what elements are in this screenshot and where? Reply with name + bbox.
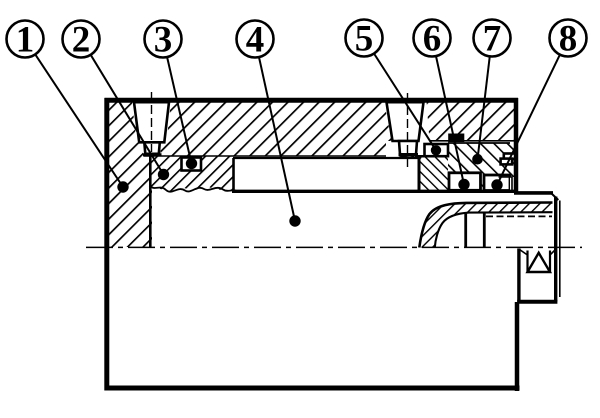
svg-text:2: 2 <box>72 20 91 61</box>
svg-text:8: 8 <box>559 19 578 60</box>
svg-text:7: 7 <box>483 19 502 60</box>
svg-text:6: 6 <box>423 19 442 60</box>
svg-text:3: 3 <box>154 20 173 61</box>
svg-text:1: 1 <box>16 20 35 61</box>
svg-text:5: 5 <box>355 19 374 60</box>
svg-text:4: 4 <box>246 20 265 61</box>
